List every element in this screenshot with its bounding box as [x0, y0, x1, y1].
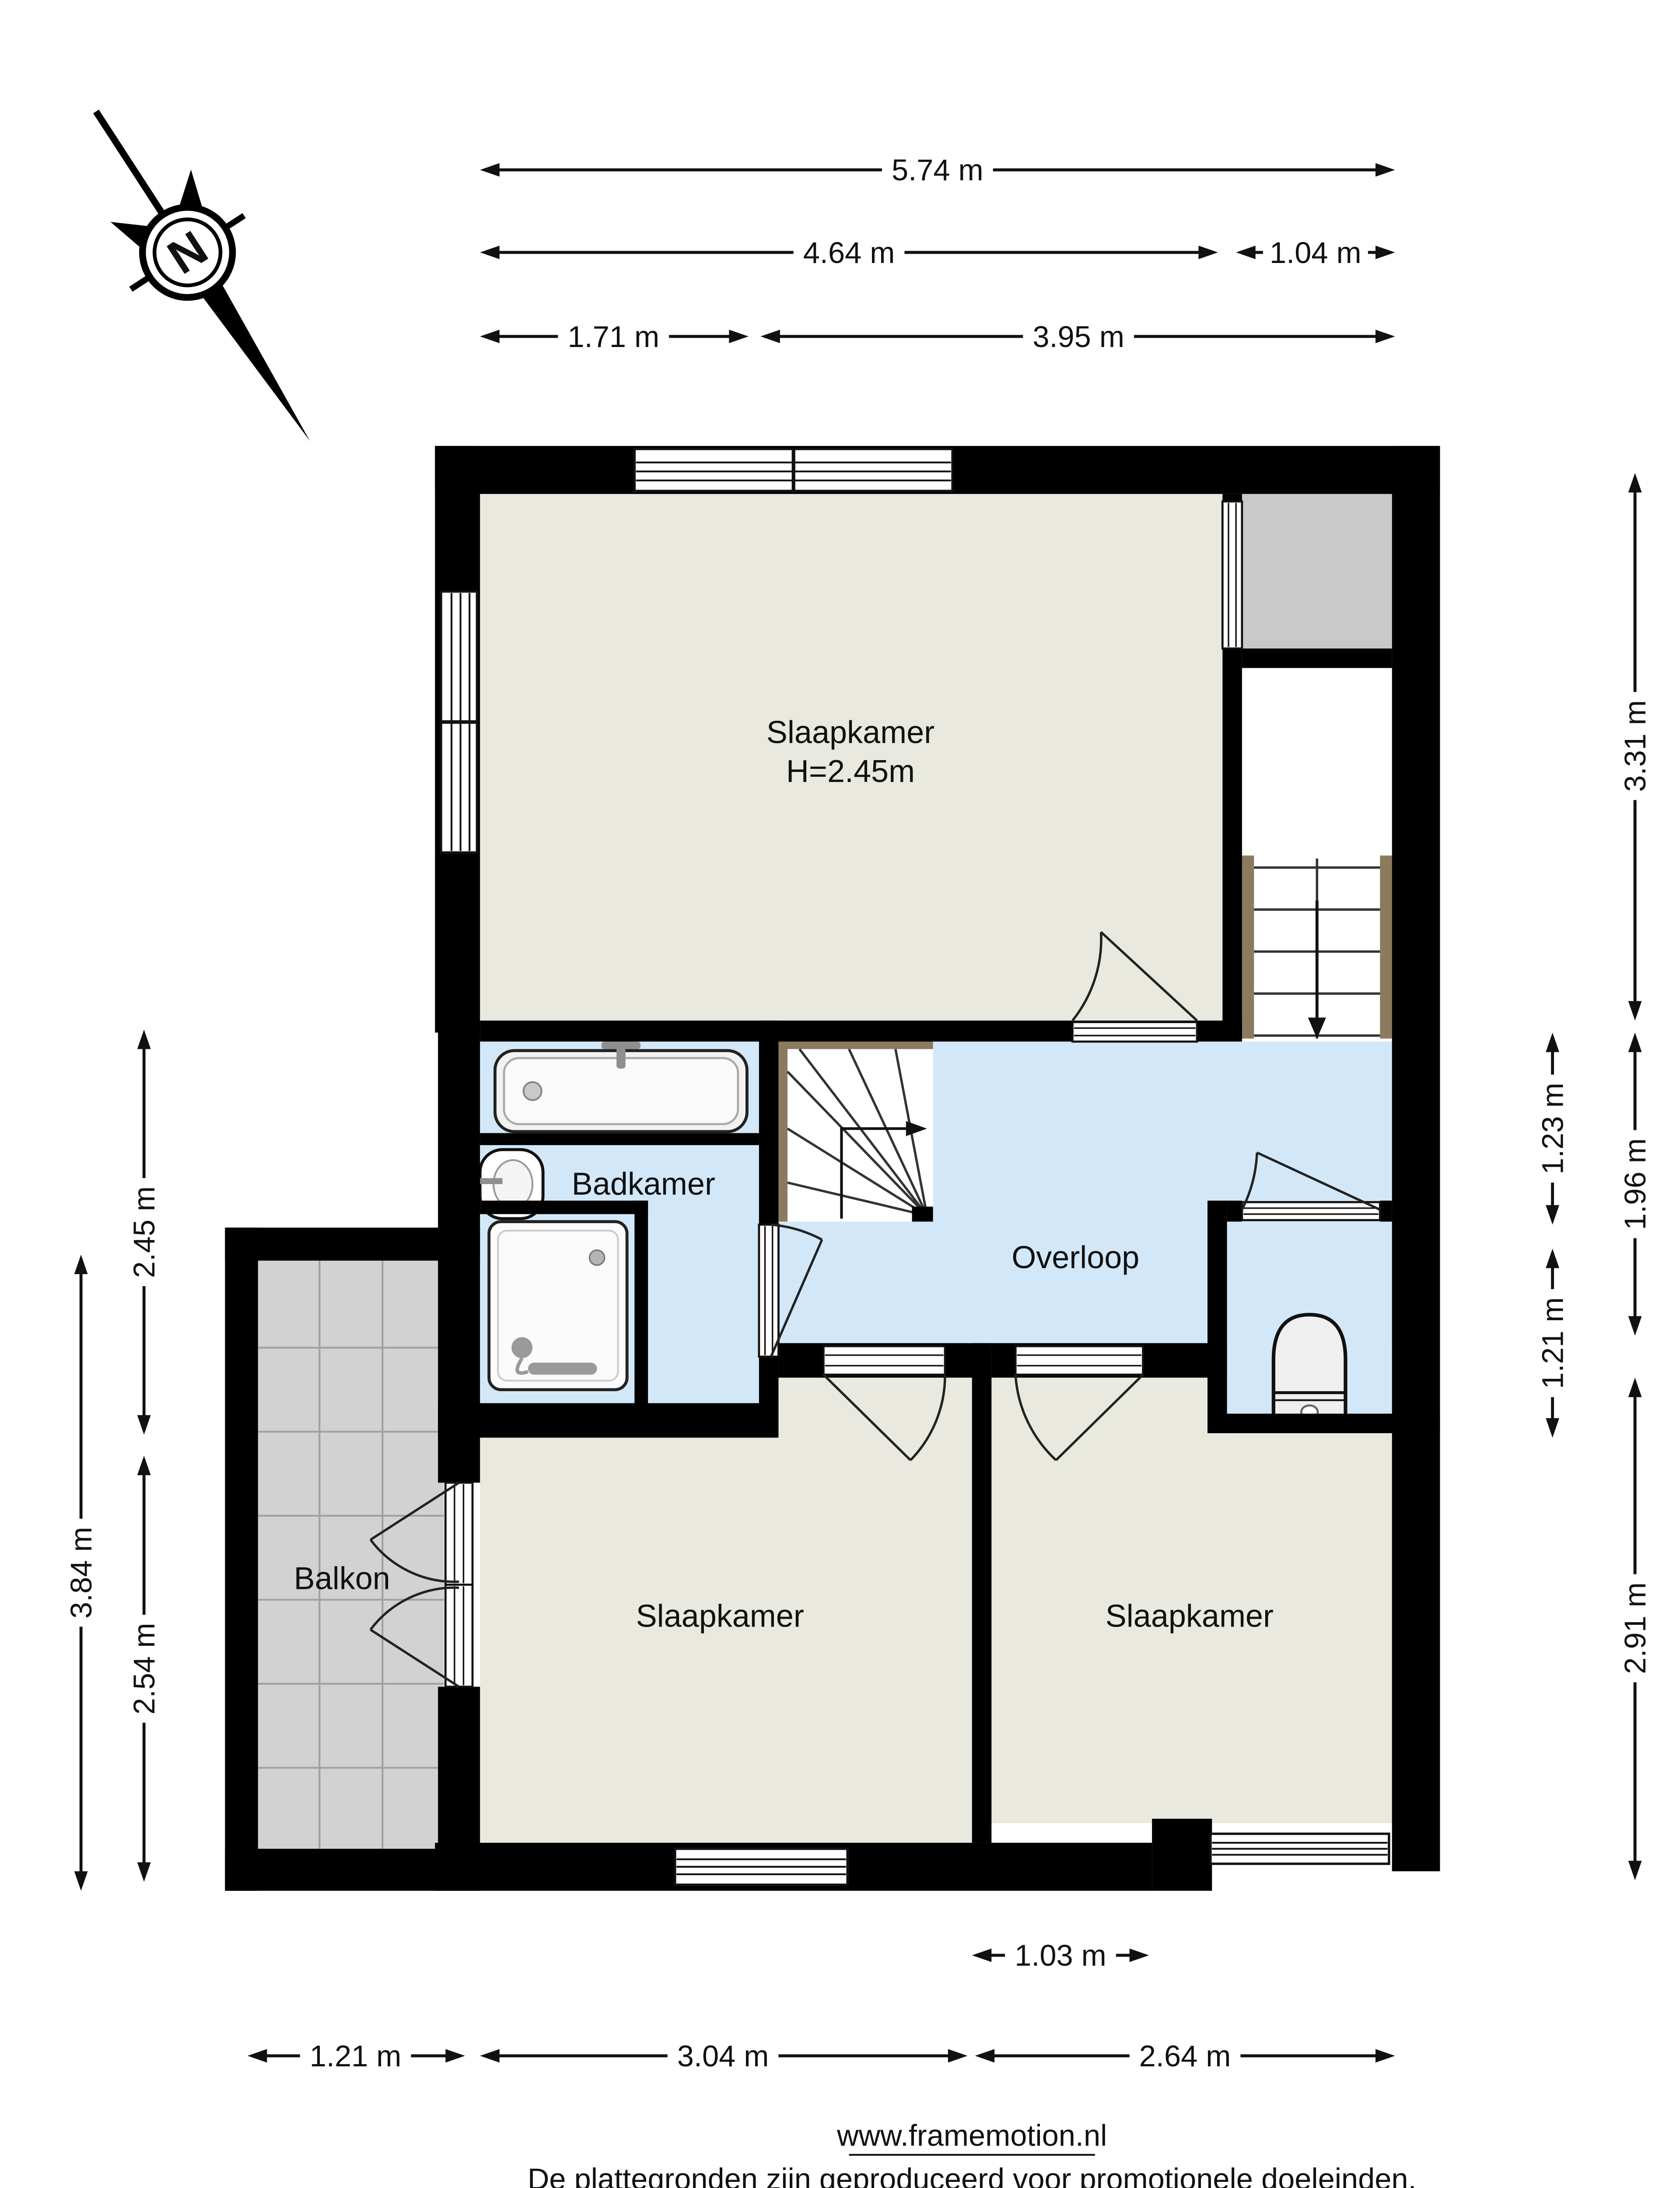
- wall-exterior-right: [1392, 446, 1440, 1871]
- dim-bottom-4: 2.64 m: [975, 2039, 1395, 2073]
- wall-between-bedrooms: [972, 1343, 992, 1843]
- balcony-tiles: [258, 1261, 444, 1849]
- wall-balcony-bottom: [225, 1849, 480, 1891]
- wall-balcony-left: [225, 1227, 258, 1890]
- shower-rail-icon: [528, 1363, 597, 1375]
- dim-label: 1.21 m: [1536, 1297, 1570, 1389]
- label-landing: Overloop: [1011, 1240, 1139, 1275]
- sink-tap-icon: [477, 1178, 502, 1184]
- dim-right-4: 1.21 m: [1536, 1248, 1570, 1438]
- wall-under-void: [1242, 649, 1392, 668]
- label-bedroom-main: Slaapkamer: [766, 715, 934, 750]
- wall-shower-top: [480, 1201, 648, 1214]
- footer-website-link[interactable]: www.framemotion.nl: [836, 2119, 1107, 2153]
- compass: N: [39, 75, 367, 478]
- dim-label: 2.45 m: [127, 1186, 161, 1278]
- dim-top-5: 3.95 m: [760, 320, 1395, 354]
- window-top-wall: [634, 449, 952, 491]
- winder-stair-newel: [912, 1206, 933, 1221]
- shower: [489, 1222, 627, 1390]
- dim-label: 1.21 m: [310, 2039, 402, 2073]
- dim-label: 1.04 m: [1270, 236, 1361, 270]
- stairs-winder: [778, 1040, 933, 1222]
- dim-left-2: 3.84 m: [64, 1255, 98, 1891]
- dim-label: 3.95 m: [1032, 320, 1124, 354]
- dim-label: 5.74 m: [892, 153, 983, 187]
- footer: www.framemotion.nl De plattegronden zijn…: [528, 2119, 1417, 2188]
- window-stairwell-wall: [1222, 501, 1242, 649]
- dim-label: 4.64 m: [803, 236, 895, 270]
- dim-bottom-2: 1.21 m: [248, 2039, 465, 2073]
- balcony: [258, 1261, 444, 1849]
- void-gray-area: [1242, 494, 1392, 649]
- wall-toilet-top-stub-right: [1380, 1201, 1392, 1222]
- dim-label: 1.03 m: [1015, 1939, 1106, 1972]
- dim-label: 1.71 m: [567, 320, 659, 354]
- window-bottom-left: [675, 1849, 847, 1885]
- dim-top-4: 1.71 m: [480, 320, 749, 354]
- dim-left-1: 2.45 m: [127, 1030, 161, 1435]
- dim-left-3: 2.54 m: [127, 1456, 161, 1882]
- window-bottom-right: [1211, 1834, 1389, 1864]
- label-bathroom: Badkamer: [572, 1167, 715, 1202]
- dim-label: 3.84 m: [64, 1527, 98, 1619]
- wall-bathroom-bottom: [438, 1403, 778, 1438]
- window-left-wall: [441, 592, 477, 853]
- floor-plan: Slaapkamer H=2.45m Badkamer Overloop Bal…: [0, 0, 1680, 2188]
- straight-stair-stringer-right: [1380, 856, 1392, 1038]
- dim-right-3: 1.96 m: [1618, 1033, 1652, 1336]
- toilet: [1274, 1315, 1346, 1423]
- dim-label: 2.91 m: [1618, 1582, 1652, 1674]
- dim-label: 3.31 m: [1618, 700, 1652, 792]
- wall-shower-right: [634, 1201, 648, 1403]
- dim-top-1: 5.74 m: [480, 153, 1395, 187]
- bathtub: [495, 1041, 747, 1132]
- label-balcony: Balkon: [294, 1561, 390, 1596]
- dim-bottom-3: 3.04 m: [480, 2039, 967, 2073]
- wall-bottom-step: [1152, 1819, 1212, 1891]
- bathtub-drain-icon: [524, 1082, 542, 1100]
- label-bedroom-main-height: H=2.45m: [786, 754, 915, 789]
- straight-stair-stringer-left: [1242, 856, 1254, 1038]
- dim-top-2: 4.64 m: [480, 236, 1218, 270]
- dim-label: 2.64 m: [1139, 2039, 1231, 2073]
- dim-label: 1.23 m: [1536, 1083, 1570, 1175]
- footer-disclaimer-1: De plattegronden zijn geproduceerd voor …: [528, 2162, 1417, 2188]
- dim-label: 3.04 m: [677, 2039, 769, 2073]
- label-bedroom-right: Slaapkamer: [1106, 1599, 1274, 1634]
- label-bedroom-left: Slaapkamer: [636, 1599, 804, 1634]
- compass-tail-icon: [199, 279, 320, 448]
- dim-label: 2.54 m: [127, 1623, 161, 1715]
- wall-toilet-bottom: [1207, 1414, 1440, 1434]
- dim-right-5: 2.91 m: [1618, 1378, 1652, 1880]
- wall-toilet-top-stub-left: [1227, 1201, 1242, 1222]
- wall-balcony-top: [225, 1227, 480, 1260]
- compass-needle-north-icon: [96, 112, 164, 217]
- wall-exterior-left-low: [438, 1687, 480, 1849]
- dim-label: 1.96 m: [1618, 1138, 1652, 1230]
- wall-toilet-left: [1207, 1201, 1227, 1433]
- dim-top-3: 1.04 m: [1236, 236, 1395, 270]
- dim-right-1: 3.31 m: [1618, 473, 1652, 1020]
- wall-tub-divider: [480, 1133, 759, 1145]
- shower-drain-icon: [589, 1250, 604, 1265]
- dim-bottom-1: 1.03 m: [972, 1939, 1149, 1972]
- shower-head-icon: [511, 1337, 532, 1358]
- bathtub-faucet-bar-icon: [602, 1041, 640, 1049]
- winder-stair-frame-left: [778, 1040, 787, 1222]
- dim-right-2: 1.23 m: [1536, 1033, 1570, 1225]
